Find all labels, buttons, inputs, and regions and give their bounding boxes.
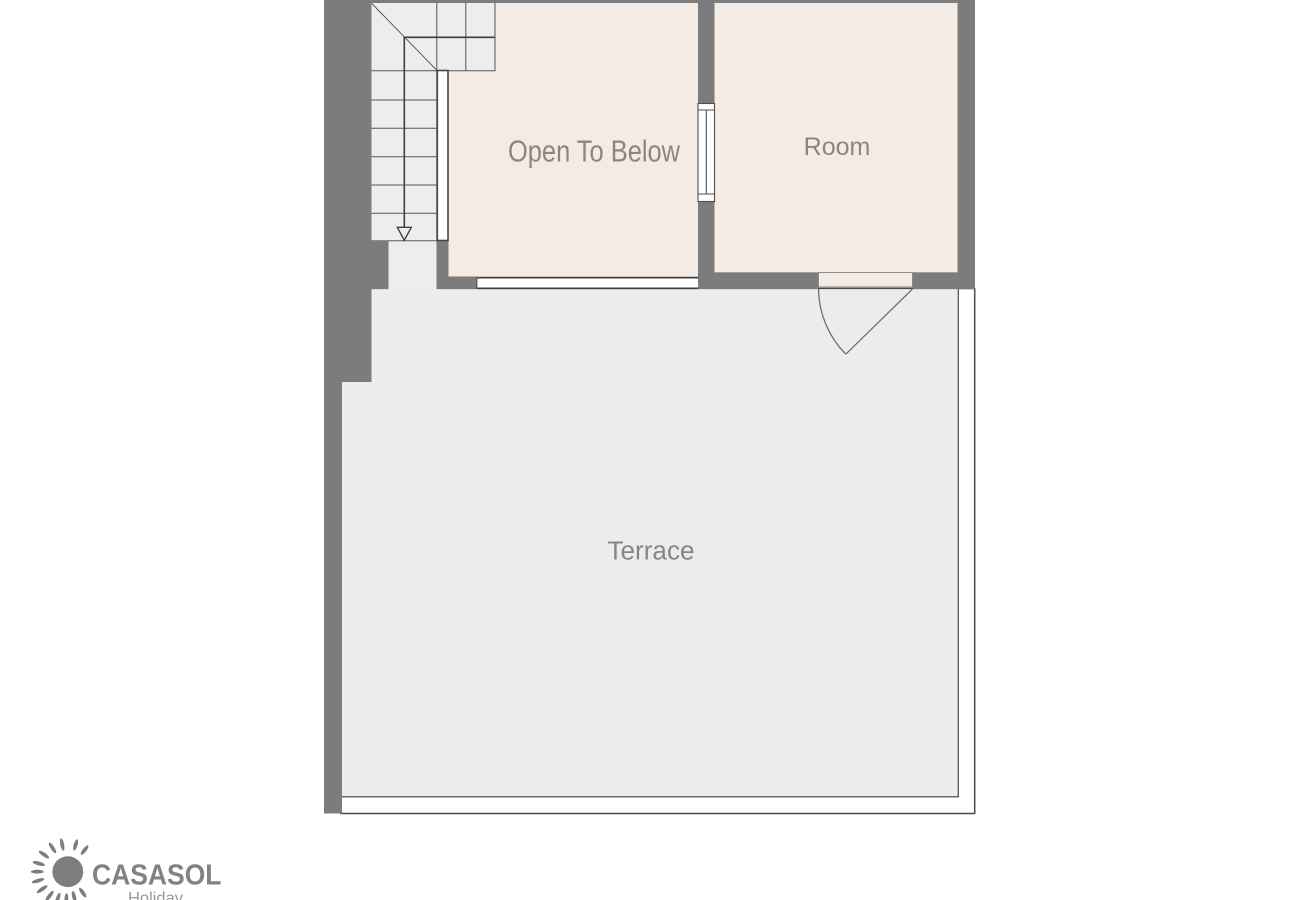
svg-text:Open To Below: Open To Below: [508, 134, 680, 169]
svg-text:Terrace: Terrace: [608, 538, 695, 566]
svg-text:Holiday: Holiday: [128, 890, 184, 900]
svg-text:CASASOL: CASASOL: [92, 860, 222, 892]
svg-text:Room: Room: [804, 133, 871, 161]
